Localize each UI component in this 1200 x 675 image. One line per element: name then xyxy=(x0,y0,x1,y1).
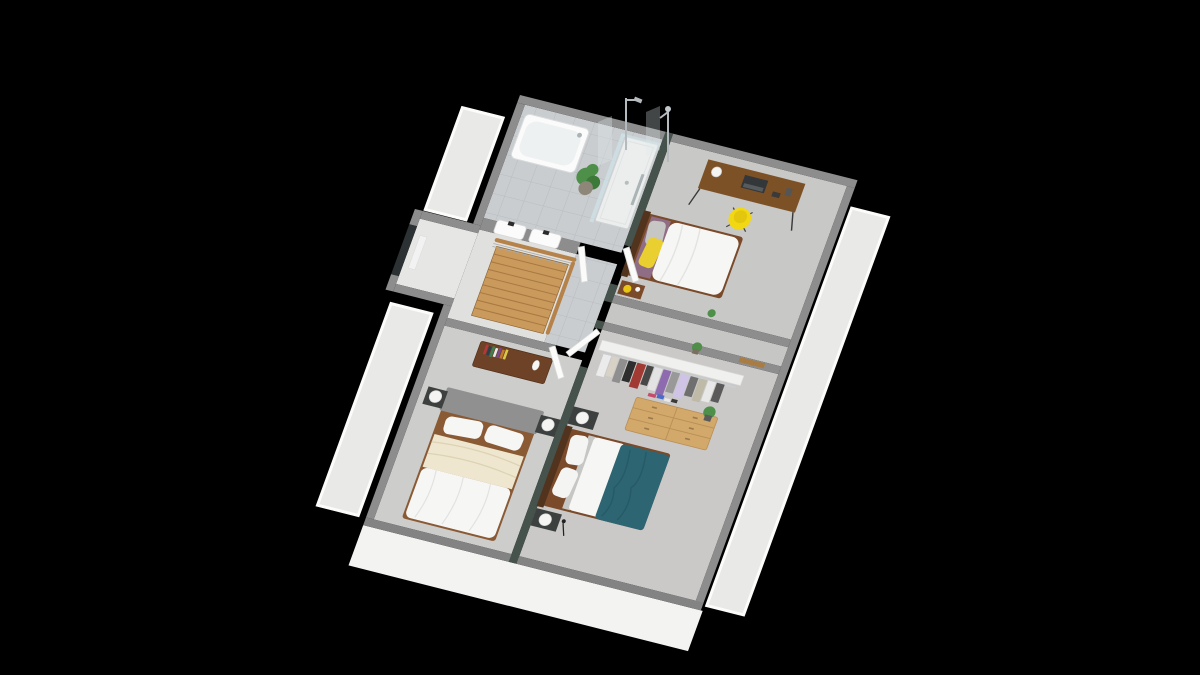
shower-glass-pane-left xyxy=(598,116,612,166)
render-stage xyxy=(0,0,1200,675)
hand-shower-head xyxy=(665,106,671,112)
floor-plan-render xyxy=(0,0,1200,675)
shower-glass-pane-right xyxy=(646,106,660,156)
